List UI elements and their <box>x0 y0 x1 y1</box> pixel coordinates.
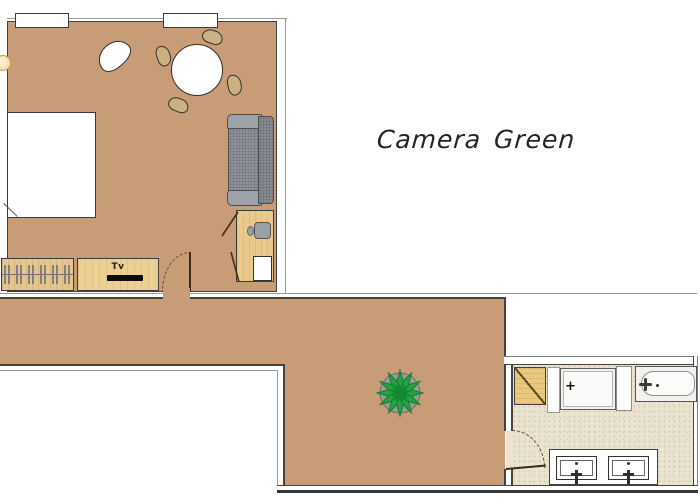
sink-faucet <box>623 473 634 476</box>
bed <box>7 112 96 218</box>
bathroom-wall-left <box>511 364 513 431</box>
desk-side-lines <box>214 205 244 287</box>
window <box>15 13 69 28</box>
desk-paper <box>253 256 272 281</box>
dining-table <box>171 44 223 96</box>
tv-stand: Tv <box>77 258 159 291</box>
sink-faucet <box>571 473 582 476</box>
shower-drain-symbol: + <box>565 380 576 393</box>
sofa <box>227 114 274 206</box>
corridor-wall-top <box>0 297 506 299</box>
shower-tray: + <box>560 368 616 410</box>
tv-screen <box>107 275 143 281</box>
corridor-wall-bottom-left <box>0 364 285 366</box>
sink-drain <box>627 462 630 465</box>
room-door <box>189 252 191 292</box>
desk-chair <box>254 222 271 239</box>
bathroom-wall-left <box>511 469 513 486</box>
sofa-back <box>258 116 274 204</box>
partition-panel <box>616 366 632 411</box>
window <box>163 13 218 28</box>
corridor-outer-wall <box>0 370 278 371</box>
bathtub-faucet <box>644 378 647 391</box>
floor-plan: Tv <box>0 0 700 500</box>
bathroom-wall-bottom <box>277 485 698 493</box>
bathtub <box>635 366 697 402</box>
room-name-label: Camera Green <box>376 125 578 154</box>
corridor-wall-left <box>283 364 285 486</box>
bathroom-wall-top <box>504 356 698 365</box>
corridor-wall-right <box>504 469 506 486</box>
sink <box>608 456 649 480</box>
exterior-wall-line <box>0 293 697 294</box>
sink-drain <box>575 462 578 465</box>
partition-wall <box>547 367 560 413</box>
potted-plant <box>376 369 424 417</box>
shower-cabinet <box>514 367 546 405</box>
tv-label: Tv <box>78 262 158 272</box>
desk-chair-detail <box>247 226 254 236</box>
doorway-threshold <box>163 288 190 300</box>
corridor-floor <box>0 299 506 365</box>
bathtub-drain <box>656 384 659 387</box>
sofa-seat <box>228 128 260 192</box>
wardrobe <box>1 258 74 291</box>
corridor-outer-wall <box>277 370 278 486</box>
sink <box>556 456 597 480</box>
wardrobe-hangers <box>4 265 70 284</box>
room-outer-wall-right <box>285 18 286 294</box>
